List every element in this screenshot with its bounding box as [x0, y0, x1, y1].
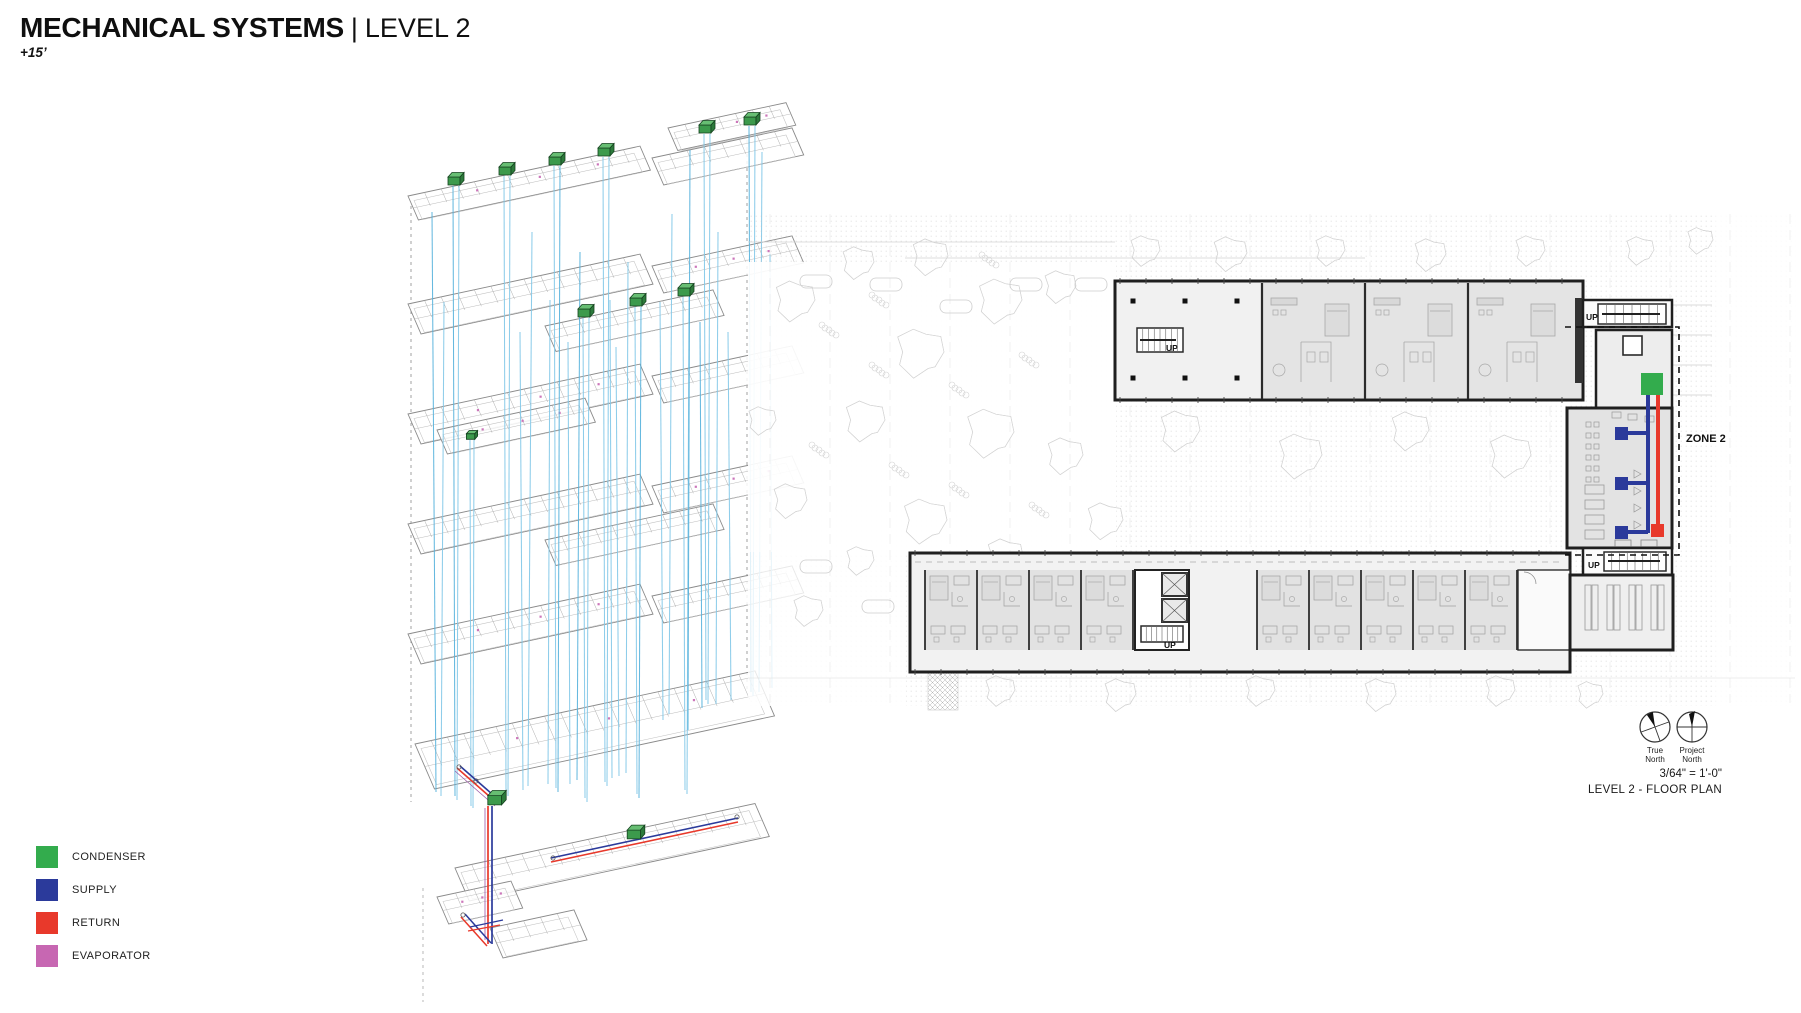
stair-elevator-core: UP	[1135, 570, 1189, 650]
condenser-unit-icon	[598, 144, 614, 157]
supply-outlet	[1615, 477, 1628, 490]
level2-floor-plan: UPUPUPUPZONE 2TrueNorthProjectNorth3/64"…	[748, 212, 1796, 796]
north-arrow-true: TrueNorth	[1640, 712, 1670, 764]
drawing-title: LEVEL 2 - FLOOR PLAN	[1588, 784, 1722, 796]
condenser-unit-icon	[678, 284, 694, 297]
up-label: UP	[1586, 312, 1598, 322]
condenser-unit-icon	[630, 294, 646, 307]
north-arrow-project: ProjectNorth	[1677, 711, 1707, 764]
condenser-square	[1641, 373, 1663, 395]
up-label: UP	[1588, 560, 1600, 570]
condenser-unit-icon	[744, 113, 760, 126]
svg-text:TrueNorth: TrueNorth	[1645, 746, 1665, 764]
condenser-unit-icon	[488, 790, 506, 804]
bottom-wing: UP	[910, 550, 1570, 675]
condenser-unit-icon	[578, 305, 594, 318]
axon-floor-plates	[408, 103, 804, 958]
scale-note: 3/64" = 1'-0"	[1660, 768, 1722, 780]
condenser-unit-icon	[448, 173, 464, 186]
north-arrows: TrueNorthProjectNorth	[1640, 711, 1707, 764]
up-label: UP	[1164, 640, 1176, 650]
presentation-board: MECHANICAL SYSTEMS|LEVEL 2 +15’ CONDENSE…	[0, 0, 1801, 1013]
return-outlet	[1651, 524, 1664, 537]
up-label: UP	[1166, 343, 1178, 353]
svg-text:ProjectNorth: ProjectNorth	[1680, 746, 1706, 764]
condenser-unit-icon	[699, 121, 715, 134]
condenser-unit-icon	[499, 163, 515, 176]
condenser-unit-icon	[549, 153, 565, 166]
zone-label: ZONE 2	[1686, 433, 1726, 445]
top-wing: UP	[1115, 278, 1583, 403]
condenser-unit-icon	[466, 431, 477, 440]
supply-outlet	[1615, 427, 1628, 440]
mechanical-drawing: UPUPUPUPZONE 2TrueNorthProjectNorth3/64"…	[0, 0, 1801, 1013]
axon-diagram	[408, 103, 804, 1002]
condenser-unit-icon	[627, 825, 645, 839]
supply-outlet	[1615, 526, 1628, 539]
stair	[1141, 626, 1183, 642]
